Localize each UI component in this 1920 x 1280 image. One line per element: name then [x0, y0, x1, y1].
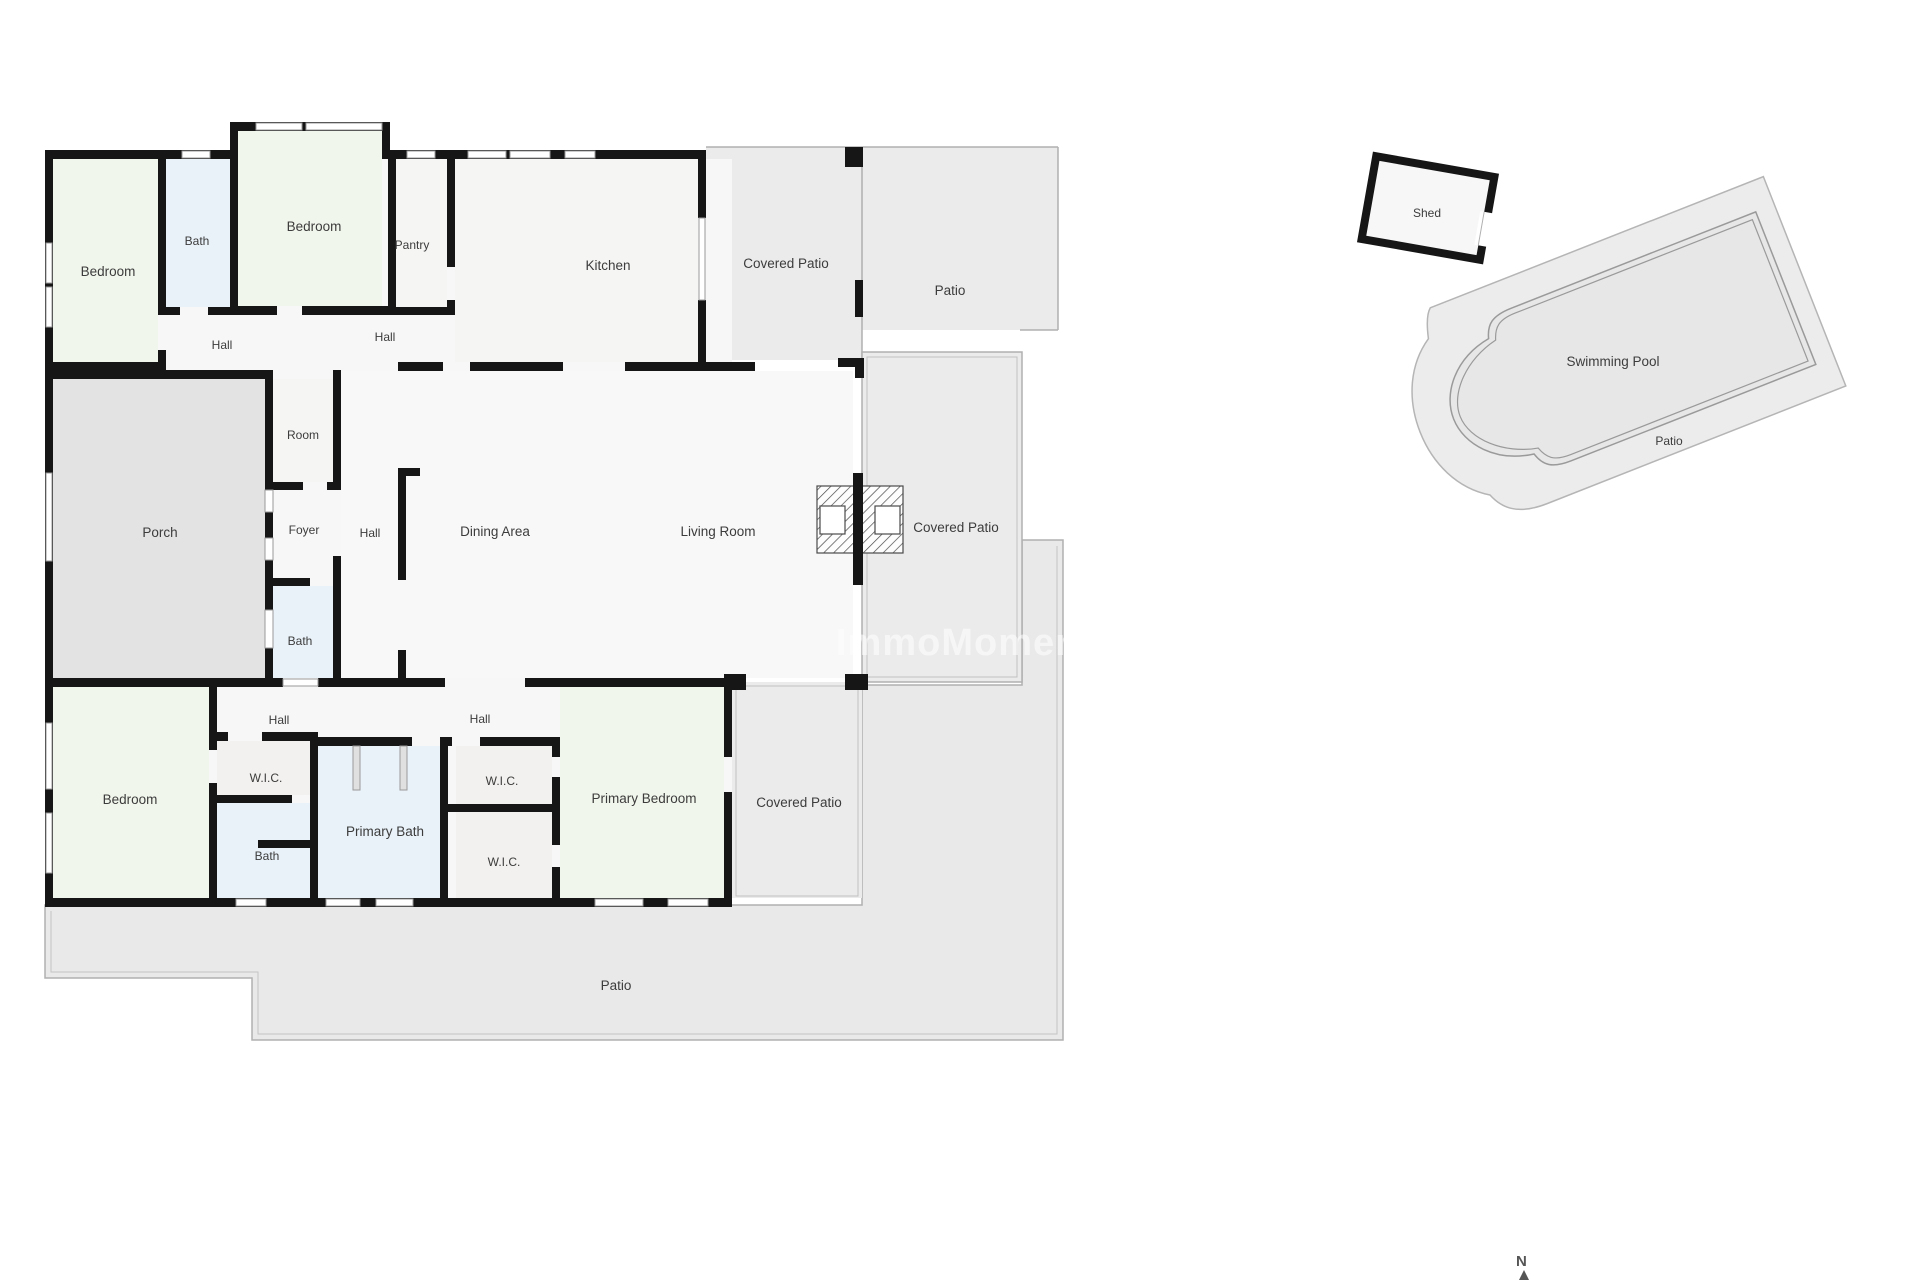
bath-foyer-fill: [273, 586, 333, 678]
room-label-patio-bottom: Patio: [601, 978, 632, 993]
room-label-wic-mid-lower: W.I.C.: [488, 855, 521, 869]
room-label-primary-bath: Primary Bath: [346, 824, 424, 839]
room-label-bath-foyer: Bath: [288, 634, 313, 648]
room-label-shed: Shed: [1413, 206, 1441, 220]
floor-plan-page: Bedroom Bath Bedroom Pantry Kitchen Cove…: [0, 0, 1920, 1280]
room-label-living-room: Living Room: [680, 524, 755, 539]
kitchen-fill: [455, 159, 698, 362]
room-label-covered-patio-right: Covered Patio: [913, 520, 999, 535]
room-label-patio-pool: Patio: [1655, 434, 1683, 448]
primary-bath-fill: [318, 746, 440, 898]
living-dining-fill: [341, 371, 853, 678]
pantry-fill: [396, 159, 447, 307]
room-label-porch: Porch: [142, 525, 177, 540]
bath-top-left-fill: [166, 159, 230, 307]
north-label: N: [1516, 1253, 1527, 1270]
room-label-pantry: Pantry: [395, 238, 430, 252]
room-label-room-small: Room: [287, 428, 319, 442]
room-label-bath-bottom: Bath: [255, 849, 280, 863]
watermark-text: ImmoMoment.e: [836, 622, 1127, 664]
room-label-dining-area: Dining Area: [460, 524, 530, 539]
room-label-covered-patio-top: Covered Patio: [743, 256, 829, 271]
room-label-wic-mid-upper: W.I.C.: [486, 774, 519, 788]
covered-patio-bottom-area: [732, 682, 862, 898]
room-label-hall-bottom-mid: Hall: [470, 712, 491, 726]
room-label-wic-left: W.I.C.: [250, 771, 283, 785]
room-label-bedroom-bottom-left: Bedroom: [103, 792, 158, 807]
floor-plan-svg: Bedroom Bath Bedroom Pantry Kitchen Cove…: [0, 0, 1920, 1280]
wic-left-fill: [217, 741, 310, 795]
room-label-hall-center: Hall: [360, 526, 381, 540]
room-label-covered-patio-bottom: Covered Patio: [756, 795, 842, 810]
room-label-primary-bedroom: Primary Bedroom: [591, 791, 696, 806]
room-label-hall-bottom-left: Hall: [269, 713, 290, 727]
bedroom-top-left-fill: [53, 159, 158, 362]
room-label-bath-top-left: Bath: [185, 234, 210, 248]
room-label-bedroom-top-mid: Bedroom: [287, 219, 342, 234]
room-label-hall-top-mid: Hall: [375, 330, 396, 344]
room-label-kitchen: Kitchen: [585, 258, 630, 273]
room-label-hall-top-left: Hall: [212, 338, 233, 352]
north-indicator: N: [1516, 1253, 1531, 1280]
room-label-foyer: Foyer: [289, 523, 320, 537]
patio-top-right-area: [862, 147, 1058, 330]
room-label-bedroom-top-left: Bedroom: [81, 264, 136, 279]
room-label-swimming-pool: Swimming Pool: [1566, 354, 1659, 369]
room-label-patio-top-right: Patio: [935, 283, 966, 298]
